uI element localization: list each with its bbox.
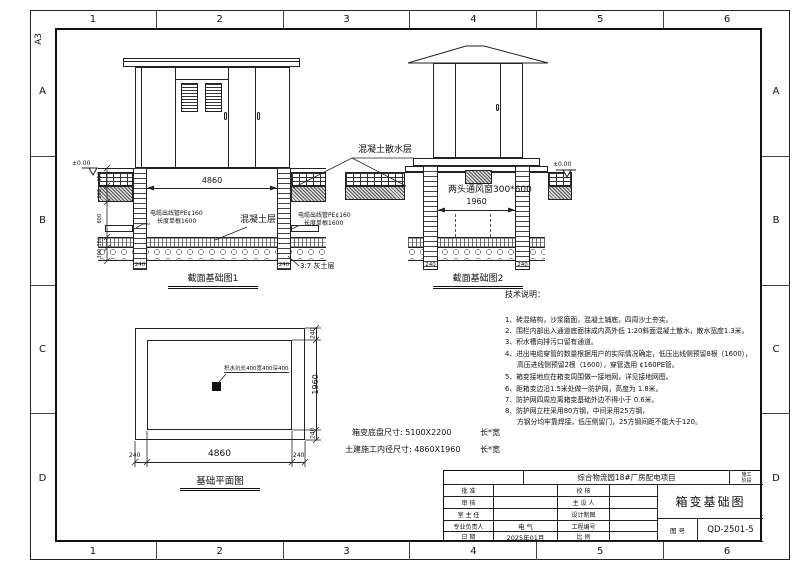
backfill-dense-band bbox=[345, 186, 405, 200]
lime-soil-label: 3:7 灰土层 bbox=[300, 263, 335, 271]
cabinet1-panel-line bbox=[228, 67, 229, 168]
pit-hidden-line bbox=[490, 214, 491, 237]
titleblock-blank-cell bbox=[444, 471, 524, 485]
brick-pier bbox=[423, 166, 438, 270]
tech-note-line: 5、箱变接地应在箱变周围做一接地网，详见接地网图。 bbox=[505, 374, 672, 381]
vdim-label: 150 bbox=[98, 237, 104, 247]
cabinet2-base-slab bbox=[413, 158, 540, 166]
civil-size-unit: 长*宽 bbox=[480, 446, 500, 455]
brick-pier bbox=[133, 168, 147, 270]
vent-window bbox=[465, 170, 492, 184]
vdim-label: 300 bbox=[98, 189, 104, 199]
cable-label-right-1: 电缆出线管PE¢160 bbox=[298, 213, 351, 220]
tech-note-line: 7、防护网四周应离箱变基础外边不得小于 0.6米。 bbox=[505, 397, 658, 404]
checker-label: 校 核 bbox=[558, 485, 610, 497]
dim-1960-label: 1960 bbox=[438, 198, 515, 207]
sump-label: 积水坑长400宽400深400 bbox=[224, 366, 289, 373]
reviewer-value bbox=[494, 497, 558, 509]
zone-letter: B bbox=[762, 157, 790, 286]
dim-4860-line bbox=[147, 188, 277, 189]
drawing-sheet: 1 2 3 4 5 6 1 2 3 4 5 6 A B C D A B C D … bbox=[0, 0, 800, 574]
drawing-number-label: 图 号 bbox=[658, 519, 698, 542]
cabinet1-panel-line bbox=[255, 67, 256, 168]
level-marker-label: ±0.00 bbox=[72, 161, 90, 168]
zone-number: 1 bbox=[30, 10, 157, 28]
zone-letter: C bbox=[762, 286, 790, 415]
zone-number: 4 bbox=[410, 542, 537, 560]
plan-title: 基础平面图 bbox=[180, 477, 260, 491]
vdim-label: 150 bbox=[98, 172, 104, 182]
chassis-size-unit: 长*宽 bbox=[480, 429, 500, 438]
stage-line2: 阶段 bbox=[741, 478, 751, 484]
tech-note-line: 高压进线侧预留2根（1600），穿管选用 ¢160PE管。 bbox=[517, 362, 679, 369]
stage-cell: 施工 阶段 bbox=[730, 471, 763, 485]
zone-letter: D bbox=[762, 414, 790, 542]
cable-label-left-1: 电缆出线管PE¢160 bbox=[150, 211, 203, 218]
section1-title: 截面基础图1 bbox=[168, 275, 258, 289]
tech-notes-title: 技术说明： bbox=[505, 291, 545, 300]
plan-dim-label: 240 bbox=[310, 428, 317, 439]
right-zone-band: A B C D bbox=[762, 28, 790, 542]
cabinet1-panel-line bbox=[175, 67, 176, 168]
checker-value bbox=[610, 485, 658, 497]
louver-vent bbox=[181, 83, 198, 112]
vdim-label: 300 bbox=[98, 249, 104, 259]
chief-label: 室 主 任 bbox=[444, 509, 494, 521]
title-block: 综合物流园18#厂房配电项目 施工 阶段 批 准 审 核 室 主 任 专业负责人… bbox=[443, 470, 762, 542]
zone-number: 4 bbox=[410, 10, 537, 28]
backfill-brick-band bbox=[345, 172, 405, 186]
door-handle bbox=[496, 104, 499, 111]
tech-note-line: 2、围栏内部出入通道底面抹成内高外低 1:20斜面混凝土散水，散水宽度1.3米。 bbox=[505, 328, 748, 335]
drafter-value bbox=[610, 509, 658, 521]
cabinet2-body bbox=[433, 63, 523, 158]
date-value: 2025年01月 bbox=[494, 532, 558, 542]
discipline-lead-value: 电 气 bbox=[494, 521, 558, 532]
zone-number: 3 bbox=[284, 10, 411, 28]
plan-dim-label: 4860 bbox=[147, 450, 292, 460]
cable-label-left-2: 长度单根1600 bbox=[157, 219, 196, 226]
dim-4860-label: 4860 bbox=[147, 177, 277, 186]
tech-note-line: 3、积水槽向排污口留有通道。 bbox=[505, 339, 598, 346]
zone-number: 5 bbox=[537, 542, 664, 560]
cabinet2-door-line bbox=[455, 63, 456, 158]
zone-number: 3 bbox=[284, 542, 411, 560]
zone-number: 5 bbox=[537, 10, 664, 28]
plan-dim-label: 240 bbox=[293, 453, 304, 460]
reviewer-label: 审 核 bbox=[444, 497, 494, 509]
plan-bottom-dim-line bbox=[135, 462, 305, 463]
tech-note-line: 6、距箱变边沿1.5米处做一防护网，高度为 1.8米。 bbox=[505, 386, 662, 393]
level-marker-label: ±0.00 bbox=[553, 162, 571, 169]
zone-letter: C bbox=[30, 286, 55, 415]
section2-title: 截面基础图2 bbox=[433, 275, 523, 289]
scale-value bbox=[610, 532, 658, 542]
bottom-zone-band: 1 2 3 4 5 6 bbox=[30, 542, 790, 560]
zone-letter: A bbox=[30, 28, 55, 157]
project-name: 综合物流园18#厂房配电项目 bbox=[524, 471, 730, 485]
chassis-size-note: 箱变底盘尺寸: 5100X2200 bbox=[352, 429, 451, 438]
backfill-dense-band bbox=[291, 186, 326, 202]
pier-dim-label: 240 bbox=[277, 262, 291, 268]
pit-hidden-line bbox=[455, 214, 456, 237]
plan-dim-label: 240 bbox=[129, 453, 140, 460]
scale-label: 比 例 bbox=[558, 532, 610, 542]
tech-note-line: 8、防护网立柱采用80方钢，中间采用25方钢， bbox=[505, 408, 649, 415]
cabinet2-door-line bbox=[500, 63, 501, 158]
zone-number: 2 bbox=[157, 542, 284, 560]
zone-number: 6 bbox=[664, 10, 790, 28]
tech-note-line: 1、砖混结构，沙浆磨面，混凝土铺底，四周沙土夯实。 bbox=[505, 317, 672, 324]
drawing-title: 箱变基础图 bbox=[658, 485, 763, 519]
apron-label: 混凝土散水层 bbox=[358, 146, 412, 156]
discipline-lead-label: 专业负责人 bbox=[444, 521, 494, 532]
left-zone-band: A B C D bbox=[30, 28, 55, 542]
plan-dim-label: 1960 bbox=[312, 374, 321, 394]
project-number-value bbox=[610, 521, 658, 532]
pier-dim-label: 240 bbox=[423, 262, 438, 268]
date-label: 日 期 bbox=[444, 532, 494, 542]
backfill-brick-band bbox=[548, 172, 572, 186]
backfill-dense-band bbox=[548, 186, 572, 200]
lead-designer-label: 主 设 人 bbox=[558, 497, 610, 509]
sump-pit bbox=[212, 382, 221, 391]
concrete-layer-label: 混凝土层 bbox=[240, 216, 276, 226]
cabinet1-roof-line bbox=[123, 61, 300, 62]
zone-number: 6 bbox=[664, 542, 790, 560]
civil-size-note: 土建施工内径尺寸: 4860X1960 bbox=[345, 446, 460, 455]
cable-label-right-2: 长度单根1600 bbox=[304, 221, 343, 228]
project-number-label: 工程编号 bbox=[558, 521, 610, 532]
tech-note-line: 4、进出电缆穿管的数量根据用户的实际情况确定，低压出线侧预留8根（1600）， bbox=[505, 351, 752, 358]
backfill-brick-band bbox=[291, 172, 326, 186]
cable-pipe bbox=[105, 225, 133, 232]
cabinet1-panel-line bbox=[141, 67, 142, 168]
zone-number: 2 bbox=[157, 10, 284, 28]
plan-dim-label: 240 bbox=[310, 328, 317, 339]
cabinet1-door-top-line bbox=[175, 79, 228, 80]
zone-number: 1 bbox=[30, 542, 157, 560]
brick-pier bbox=[277, 168, 291, 270]
door-handle bbox=[224, 112, 227, 120]
vent-window-label: 两头通风窗300*600 bbox=[448, 186, 532, 196]
sheet-format-label: A3 bbox=[35, 33, 45, 45]
brick-pier bbox=[515, 166, 530, 270]
vdim-label: 800 bbox=[98, 214, 104, 224]
approver-value bbox=[494, 485, 558, 497]
pier-dim-label: 240 bbox=[515, 262, 530, 268]
drafter-label: 设计制图 bbox=[558, 509, 610, 521]
lead-designer-value bbox=[610, 497, 658, 509]
door-handle bbox=[257, 112, 260, 120]
zone-letter: D bbox=[30, 414, 55, 542]
dim-1960-line bbox=[438, 210, 515, 211]
zone-letter: A bbox=[762, 28, 790, 157]
zone-letter: B bbox=[30, 157, 55, 286]
cabinet1-roof bbox=[123, 58, 300, 67]
drawing-number-value: QD-2501-5 bbox=[698, 519, 763, 542]
top-zone-band: 1 2 3 4 5 6 bbox=[30, 10, 790, 28]
louver-vent bbox=[205, 83, 222, 112]
pier-dim-label: 240 bbox=[133, 262, 147, 268]
approver-label: 批 准 bbox=[444, 485, 494, 497]
chief-value bbox=[494, 509, 558, 521]
tech-note-line: 方钢分均牢靠焊接，低压侧留门，25方钢间距不能大于120。 bbox=[517, 419, 702, 426]
